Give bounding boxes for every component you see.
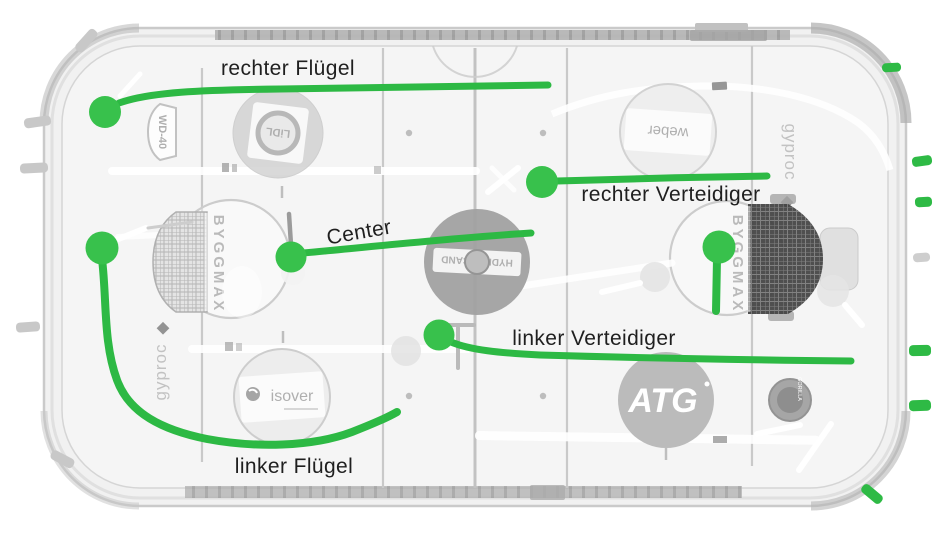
- isover-decal: isover: [234, 349, 330, 445]
- bottom-rail: [185, 486, 742, 498]
- lidl-decal: LiDL: [233, 88, 323, 178]
- label-left-wing: linker Flügel: [235, 455, 353, 478]
- left-wing-dot: [86, 232, 119, 265]
- right-wing-dot: [89, 96, 121, 128]
- right-defender-dot: [526, 166, 558, 198]
- byggmax-right-text: BYGGMAX: [729, 215, 746, 314]
- center-dot: [276, 242, 307, 273]
- weber-decal: weber: [620, 84, 716, 180]
- faceoff-dot: [540, 130, 546, 136]
- faceoff-dot: [406, 130, 412, 136]
- gorilla-decal: GORILLA: [769, 377, 811, 421]
- gyproc-right-text: gyproc: [781, 123, 800, 180]
- faceoff-dot: [406, 393, 412, 399]
- hydroscand-decal: HYDROSCAND: [424, 209, 530, 315]
- wd40-text: WD-40: [156, 115, 168, 149]
- goalie-track: [716, 259, 717, 311]
- label-right-wing: rechter Flügel: [221, 57, 355, 80]
- gorilla-text: GORILLA: [796, 377, 802, 401]
- faceoff-dot: [540, 393, 546, 399]
- atg-text: ATG: [627, 382, 697, 420]
- wd40-decal: WD-40: [148, 104, 176, 160]
- rink-scene: WD-40 LiDL weber isover: [0, 0, 950, 544]
- table-hockey-positions-diagram: WD-40 LiDL weber isover: [0, 0, 950, 544]
- left-defender-dot: [424, 320, 455, 351]
- isover-text: isover: [271, 388, 314, 405]
- weber-text: weber: [647, 122, 690, 142]
- label-left-defender: linker Verteidiger: [512, 327, 676, 350]
- gyproc-left-text: gyproc: [151, 343, 170, 400]
- goalie-dot: [703, 231, 736, 264]
- label-right-defender: rechter Verteidiger: [581, 183, 760, 206]
- atg-decal: ATG: [618, 352, 714, 448]
